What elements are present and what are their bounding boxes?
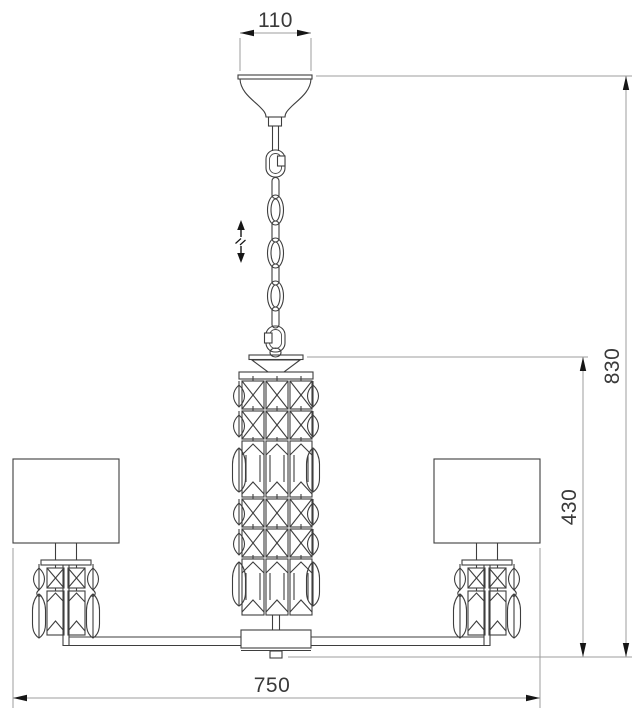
height-adjustable-symbol: [236, 220, 246, 263]
crystal-oval-large: [233, 448, 246, 492]
right-shade: [434, 459, 540, 543]
canopy-ferrule: [269, 117, 282, 126]
crystal-tall: [290, 555, 312, 615]
left-lamp: [13, 459, 119, 646]
crystal-tall: [266, 555, 288, 615]
dim-arrow-down: [623, 643, 629, 657]
dim-arrow-up: [623, 76, 629, 90]
dim-arrow-left: [13, 695, 27, 701]
bottom-finial-stub: [270, 651, 282, 658]
up-down-arrow-icon: [237, 253, 245, 263]
crystal-oval-small: [234, 529, 245, 555]
crystal-oval-small: [234, 381, 245, 407]
column-cone: [252, 360, 300, 372]
crystal-x: [290, 376, 312, 409]
hub-and-arms: [63, 630, 490, 658]
ceiling-canopy: [238, 75, 312, 126]
dim-label-830: 830: [601, 348, 624, 385]
column-top-frame: [239, 372, 313, 379]
right-lamp: [434, 459, 540, 646]
central-crystal-column: [233, 355, 320, 630]
left-shade: [13, 459, 119, 543]
chandelier-dimension-drawing: 110 830 430 750: [0, 0, 644, 720]
quick-link-nut: [278, 156, 286, 166]
dim-label-110: 110: [258, 9, 293, 32]
dimension-canopy-width: 110: [240, 9, 311, 71]
crystal-x: [266, 376, 288, 409]
crystal-x: [242, 494, 264, 527]
dim-label-430: 430: [558, 489, 581, 526]
dim-arrow-down: [580, 643, 586, 657]
dim-arrow-up: [580, 357, 586, 371]
crystal-x: [242, 524, 264, 557]
canopy-bell: [240, 79, 311, 117]
crystal-oval-small: [234, 411, 245, 437]
central-hub: [241, 630, 311, 648]
crystal-x: [290, 524, 312, 557]
crystal-x: [266, 524, 288, 557]
quick-link-nut: [265, 333, 273, 343]
crystal-x: [290, 494, 312, 527]
crystal-tall: [266, 437, 288, 497]
crystal-x: [290, 406, 312, 439]
up-down-arrow-icon: [237, 220, 245, 230]
canopy-mount-plate: [238, 75, 312, 79]
dim-label-750: 750: [254, 674, 291, 697]
dim-arrow-right: [526, 695, 540, 701]
dimension-crystal-column-height: 430: [307, 357, 588, 657]
dim-arrow-right: [297, 30, 311, 36]
crystal-x: [242, 376, 264, 409]
crystal-x: [242, 406, 264, 439]
crystal-oval-small: [234, 499, 245, 525]
break-squiggle: [236, 239, 246, 246]
dim-arrow-left: [240, 30, 254, 36]
suspension-chain: [265, 126, 286, 357]
left-crystal-pendant-group: [33, 560, 100, 646]
technical-drawing-canvas: 110 830 430 750: [0, 0, 644, 720]
right-crystal-pendant-group: [454, 560, 521, 646]
crystal-x: [266, 406, 288, 439]
dimension-overall-width: 750: [13, 548, 540, 708]
crystal-oval-large: [233, 562, 246, 606]
crystal-x: [266, 494, 288, 527]
